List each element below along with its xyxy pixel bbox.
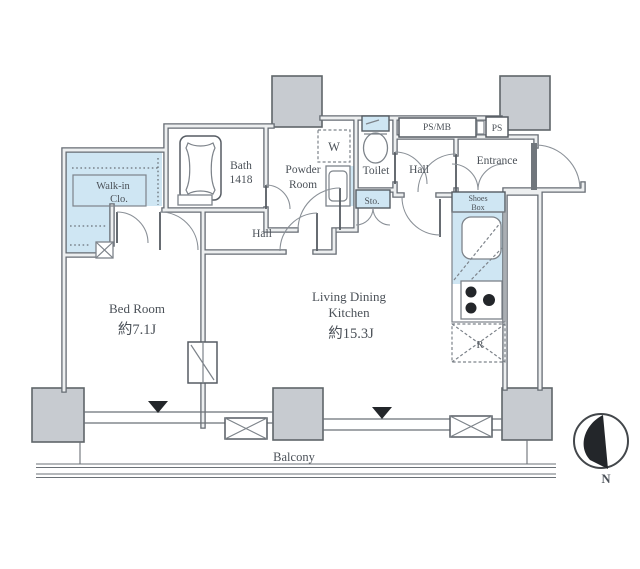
burner-3 bbox=[483, 294, 495, 306]
room-label-shoes-box-2: Box bbox=[471, 203, 484, 212]
room-label-powder-2: Room bbox=[289, 179, 317, 191]
room-label-entrance: Entrance bbox=[477, 155, 518, 167]
room-label-upper-hall: Hall bbox=[409, 164, 429, 176]
pillar-bottom-right bbox=[502, 388, 552, 440]
room-label-ps-mb: PS/MB bbox=[423, 123, 451, 133]
room-label-ldk-2: Kitchen bbox=[328, 305, 370, 320]
pillar-bottom-middle bbox=[273, 388, 323, 440]
stove-icon bbox=[461, 281, 502, 319]
room-label-lower-hall: Hall bbox=[252, 228, 272, 240]
compass-north-label: N bbox=[601, 472, 610, 486]
room-label-bedroom-area: 約7.1J bbox=[118, 321, 157, 338]
entry-door-leaf bbox=[531, 143, 537, 190]
room-label-toilet: Toilet bbox=[363, 165, 390, 177]
room-label-bath: Bath bbox=[230, 160, 252, 172]
bath-ledge bbox=[178, 195, 212, 205]
burner-2 bbox=[466, 303, 477, 314]
floor-plan: N Walk-in Clo. Bath 1418 Powder Room W T… bbox=[0, 0, 640, 569]
room-label-ps: PS bbox=[492, 124, 503, 134]
kitchen-sink-icon bbox=[462, 217, 501, 259]
room-label-walk-in-closet-1: Walk-in bbox=[96, 181, 130, 192]
room-label-powder-1: Powder bbox=[285, 164, 320, 176]
room-label-shoes-box-1: Shoes bbox=[468, 194, 487, 203]
room-label-washer: W bbox=[328, 140, 340, 154]
burner-1 bbox=[466, 287, 477, 298]
toilet-icon bbox=[364, 133, 388, 163]
floor-plan-drawing: N Walk-in Clo. Bath 1418 Powder Room W T… bbox=[0, 0, 640, 569]
room-label-storage: Sto. bbox=[364, 197, 379, 207]
room-label-balcony: Balcony bbox=[273, 450, 315, 464]
room-label-bath-size: 1418 bbox=[230, 174, 253, 186]
room-label-walk-in-closet-2: Clo. bbox=[110, 194, 128, 205]
room-label-ldk-1: Living Dining bbox=[312, 289, 387, 304]
room-label-refrigerator: R bbox=[476, 340, 483, 351]
room-label-bedroom: Bed Room bbox=[109, 301, 165, 316]
room-label-ldk-area: 約15.3J bbox=[328, 325, 374, 342]
pillar-top-left bbox=[272, 76, 322, 127]
pillar-bottom-left bbox=[32, 388, 84, 442]
